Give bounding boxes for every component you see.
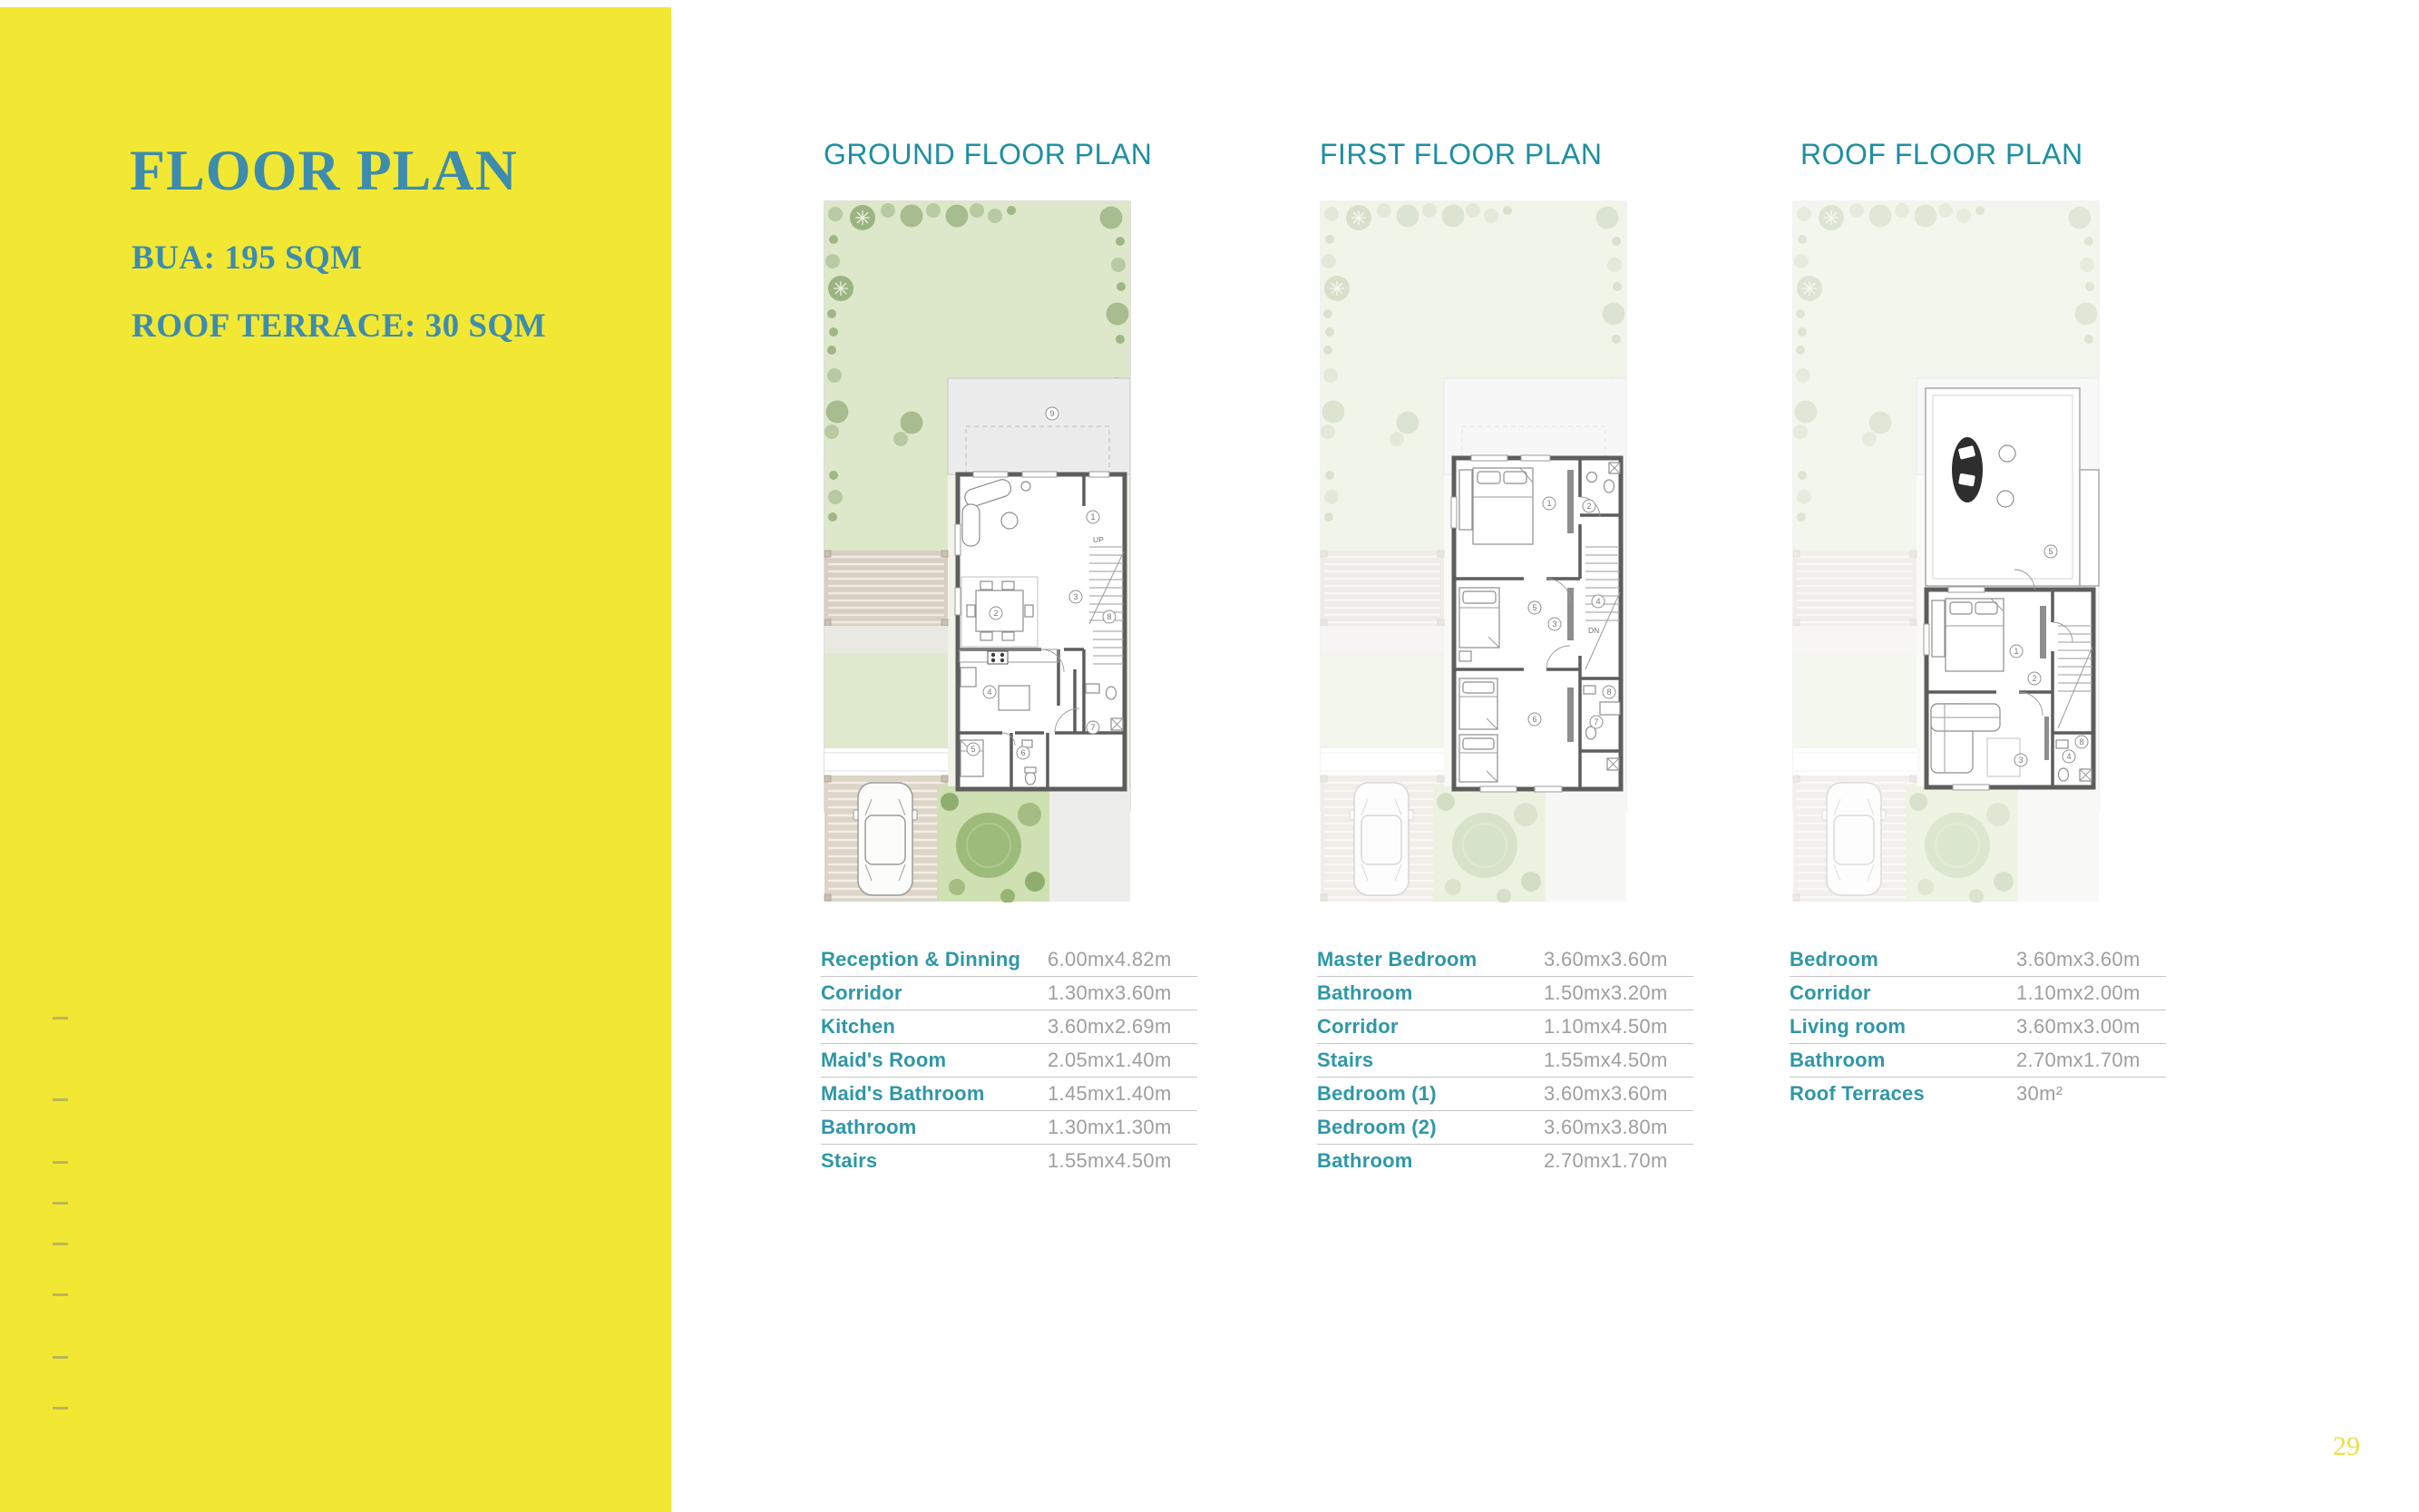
room-label: Corridor [1790, 981, 2016, 1005]
svg-text:8: 8 [2079, 737, 2083, 746]
room-number-3: 3 [2014, 754, 2027, 766]
room-number-5: 5 [2044, 545, 2057, 558]
sidebar: FLOOR PLAN BUA: 195 SQM ROOF TERRACE: 30… [0, 7, 671, 1512]
table-row: Corridor1.10mx2.00m [1790, 977, 2166, 1010]
room-label: Bedroom [1790, 948, 2016, 971]
room-number-1: 1 [2010, 645, 2023, 658]
tick-mark [53, 1243, 68, 1245]
room-number-8: 8 [1603, 686, 1615, 698]
room-label: Corridor [1317, 1015, 1544, 1039]
svg-text:5: 5 [971, 745, 975, 754]
ground-floor-plan-image: UP [821, 198, 1134, 902]
room-label: Bathroom [821, 1116, 1048, 1139]
room-number-9: 9 [1046, 407, 1058, 420]
roof-terrace-area [1926, 388, 2099, 586]
brochure-page: FLOOR PLAN BUA: 195 SQM ROOF TERRACE: 30… [0, 0, 2419, 1512]
table-row: Maid's Room2.05mx1.40m [821, 1044, 1197, 1078]
room-dimension: 3.60mx3.60m [1544, 1082, 1668, 1106]
room-label: Reception & Dinning [821, 948, 1048, 971]
room-label: Stairs [1317, 1049, 1544, 1072]
room-label: Bathroom [1790, 1049, 2016, 1072]
svg-text:2: 2 [2032, 674, 2036, 683]
table-row: Bathroom2.70mx1.70m [1317, 1145, 1693, 1177]
svg-text:3: 3 [1552, 619, 1556, 629]
room-label: Corridor [821, 981, 1048, 1005]
svg-text:4: 4 [2066, 752, 2071, 761]
svg-text:8: 8 [1606, 688, 1611, 697]
table-row: Reception & Dinning6.00mx4.82m [821, 943, 1197, 977]
svg-text:3: 3 [2018, 756, 2023, 765]
room-number-8: 8 [1103, 610, 1116, 623]
table-row: Kitchen3.60mx2.69m [821, 1010, 1197, 1044]
room-dimension: 2.70mx1.70m [2016, 1049, 2141, 1072]
room-label: Master Bedroom [1317, 948, 1544, 971]
room-dimension: 1.30mx1.30m [1048, 1116, 1172, 1139]
room-number-1: 1 [1543, 497, 1556, 510]
room-dimension: 1.45mx1.40m [1048, 1082, 1172, 1106]
svg-text:4: 4 [1595, 597, 1600, 606]
room-dimension: 6.00mx4.82m [1048, 948, 1172, 971]
room-dimension: 2.70mx1.70m [1544, 1149, 1668, 1173]
svg-text:1: 1 [2014, 647, 2018, 656]
room-number-3: 3 [1548, 618, 1561, 630]
svg-text:6: 6 [1532, 715, 1536, 724]
table-row: Master Bedroom3.60mx3.60m [1317, 943, 1693, 977]
room-number-5: 5 [967, 743, 980, 756]
table-row: Bathroom2.70mx1.70m [1790, 1044, 2166, 1078]
room-dimension: 1.30mx3.60m [1048, 981, 1172, 1005]
room-label: Stairs [821, 1149, 1048, 1173]
room-label: Kitchen [821, 1015, 1048, 1039]
room-dimension: 3.60mx3.80m [1544, 1116, 1668, 1139]
room-dimension: 30m² [2016, 1082, 2063, 1106]
room-label: Bathroom [1317, 981, 1544, 1005]
room-number-4: 4 [2063, 750, 2075, 763]
svg-text:3: 3 [1073, 592, 1078, 601]
table-row: Stairs1.55mx4.50m [821, 1145, 1197, 1177]
svg-text:9: 9 [1049, 409, 1054, 418]
room-dimension: 3.60mx3.60m [1544, 948, 1668, 971]
room-number-6: 6 [1528, 713, 1541, 726]
plan-title-roof: ROOF FLOOR PLAN [1800, 138, 2083, 171]
room-dimension: 3.60mx3.00m [2016, 1015, 2141, 1039]
room-label: Bedroom (2) [1317, 1116, 1544, 1139]
room-table-roof: Bedroom3.60mx3.60mCorridor1.10mx2.00mLiv… [1790, 943, 2166, 1110]
svg-text:UP: UP [1093, 535, 1104, 544]
room-number-4: 4 [983, 686, 996, 698]
svg-text:8: 8 [1107, 612, 1111, 621]
room-number-7: 7 [1087, 721, 1099, 734]
svg-text:2: 2 [1586, 502, 1591, 511]
page-number: 29 [2333, 1431, 2360, 1462]
table-row: Stairs1.55mx4.50m [1317, 1044, 1693, 1078]
page-title: FLOOR PLAN [130, 137, 518, 204]
tick-mark [53, 1407, 68, 1410]
room-dimension: 1.10mx4.50m [1544, 1015, 1668, 1039]
room-label: Maid's Bathroom [821, 1082, 1048, 1106]
tick-mark [53, 1356, 68, 1359]
room-number-7: 7 [1590, 716, 1603, 728]
room-dimension: 2.05mx1.40m [1048, 1049, 1172, 1072]
room-label: Living room [1790, 1015, 2016, 1039]
room-dimension: 1.55mx4.50m [1048, 1149, 1172, 1173]
tick-mark [53, 1293, 68, 1296]
table-row: Bedroom3.60mx3.60m [1790, 943, 2166, 977]
room-dimension: 3.60mx3.60m [2016, 948, 2141, 971]
room-number-5: 5 [1528, 601, 1541, 614]
table-row: Bathroom1.30mx1.30m [821, 1111, 1197, 1145]
room-table-ground: Reception & Dinning6.00mx4.82mCorridor1.… [821, 943, 1197, 1177]
room-number-6: 6 [1017, 746, 1029, 759]
room-label: Maid's Room [821, 1049, 1048, 1072]
table-row: Roof Terraces30m² [1790, 1078, 2166, 1110]
roof-terrace-subtitle: ROOF TERRACE: 30 SQM [132, 307, 546, 346]
room-number-8: 8 [2075, 736, 2088, 748]
room-table-first: Master Bedroom3.60mx3.60mBathroom1.50mx3… [1317, 943, 1693, 1177]
room-label: Bathroom [1317, 1149, 1544, 1173]
table-row: Bedroom (2)3.60mx3.80m [1317, 1111, 1693, 1145]
svg-text:7: 7 [1090, 723, 1095, 732]
room-number-2: 2 [1583, 500, 1595, 512]
svg-text:2: 2 [993, 609, 998, 618]
svg-text:1: 1 [1090, 512, 1095, 522]
svg-text:5: 5 [1532, 603, 1536, 612]
svg-text:5: 5 [2048, 547, 2053, 556]
tick-mark [53, 1098, 68, 1101]
tick-mark [53, 1161, 68, 1164]
tick-mark [53, 1017, 68, 1019]
room-dimension: 3.60mx2.69m [1048, 1015, 1172, 1039]
table-row: Bedroom (1)3.60mx3.60m [1317, 1078, 1693, 1111]
svg-text:4: 4 [987, 688, 991, 697]
table-row: Corridor1.10mx4.50m [1317, 1010, 1693, 1044]
room-dimension: 1.55mx4.50m [1544, 1049, 1668, 1072]
room-label: Bedroom (1) [1317, 1082, 1544, 1106]
plan-title-first: FIRST FLOOR PLAN [1320, 138, 1602, 171]
table-row: Maid's Bathroom1.45mx1.40m [821, 1078, 1197, 1111]
plan-title-ground: GROUND FLOOR PLAN [824, 138, 1152, 171]
bua-subtitle: BUA: 195 SQM [132, 239, 363, 278]
svg-text:1: 1 [1546, 499, 1551, 508]
room-number-1: 1 [1087, 511, 1099, 523]
room-number-3: 3 [1069, 590, 1082, 603]
tick-mark [53, 1202, 68, 1205]
room-dimension: 1.10mx2.00m [2016, 981, 2141, 1005]
first-floor-plan-image: DN [1317, 198, 1630, 902]
room-number-4: 4 [1592, 595, 1605, 608]
table-row: Corridor1.30mx3.60m [821, 977, 1197, 1010]
svg-text:7: 7 [1594, 717, 1598, 727]
room-label: Roof Terraces [1790, 1082, 2016, 1106]
table-row: Living room3.60mx3.00m [1790, 1010, 2166, 1044]
roof-floor-plan-image: 1 2 3 4 5 8 [1790, 198, 2102, 902]
room-number-2: 2 [990, 607, 1002, 619]
table-row: Bathroom1.50mx3.20m [1317, 977, 1693, 1010]
room-dimension: 1.50mx3.20m [1544, 981, 1668, 1005]
svg-text:DN: DN [1588, 626, 1599, 635]
room-number-2: 2 [2028, 672, 2041, 685]
svg-text:6: 6 [1020, 748, 1025, 757]
